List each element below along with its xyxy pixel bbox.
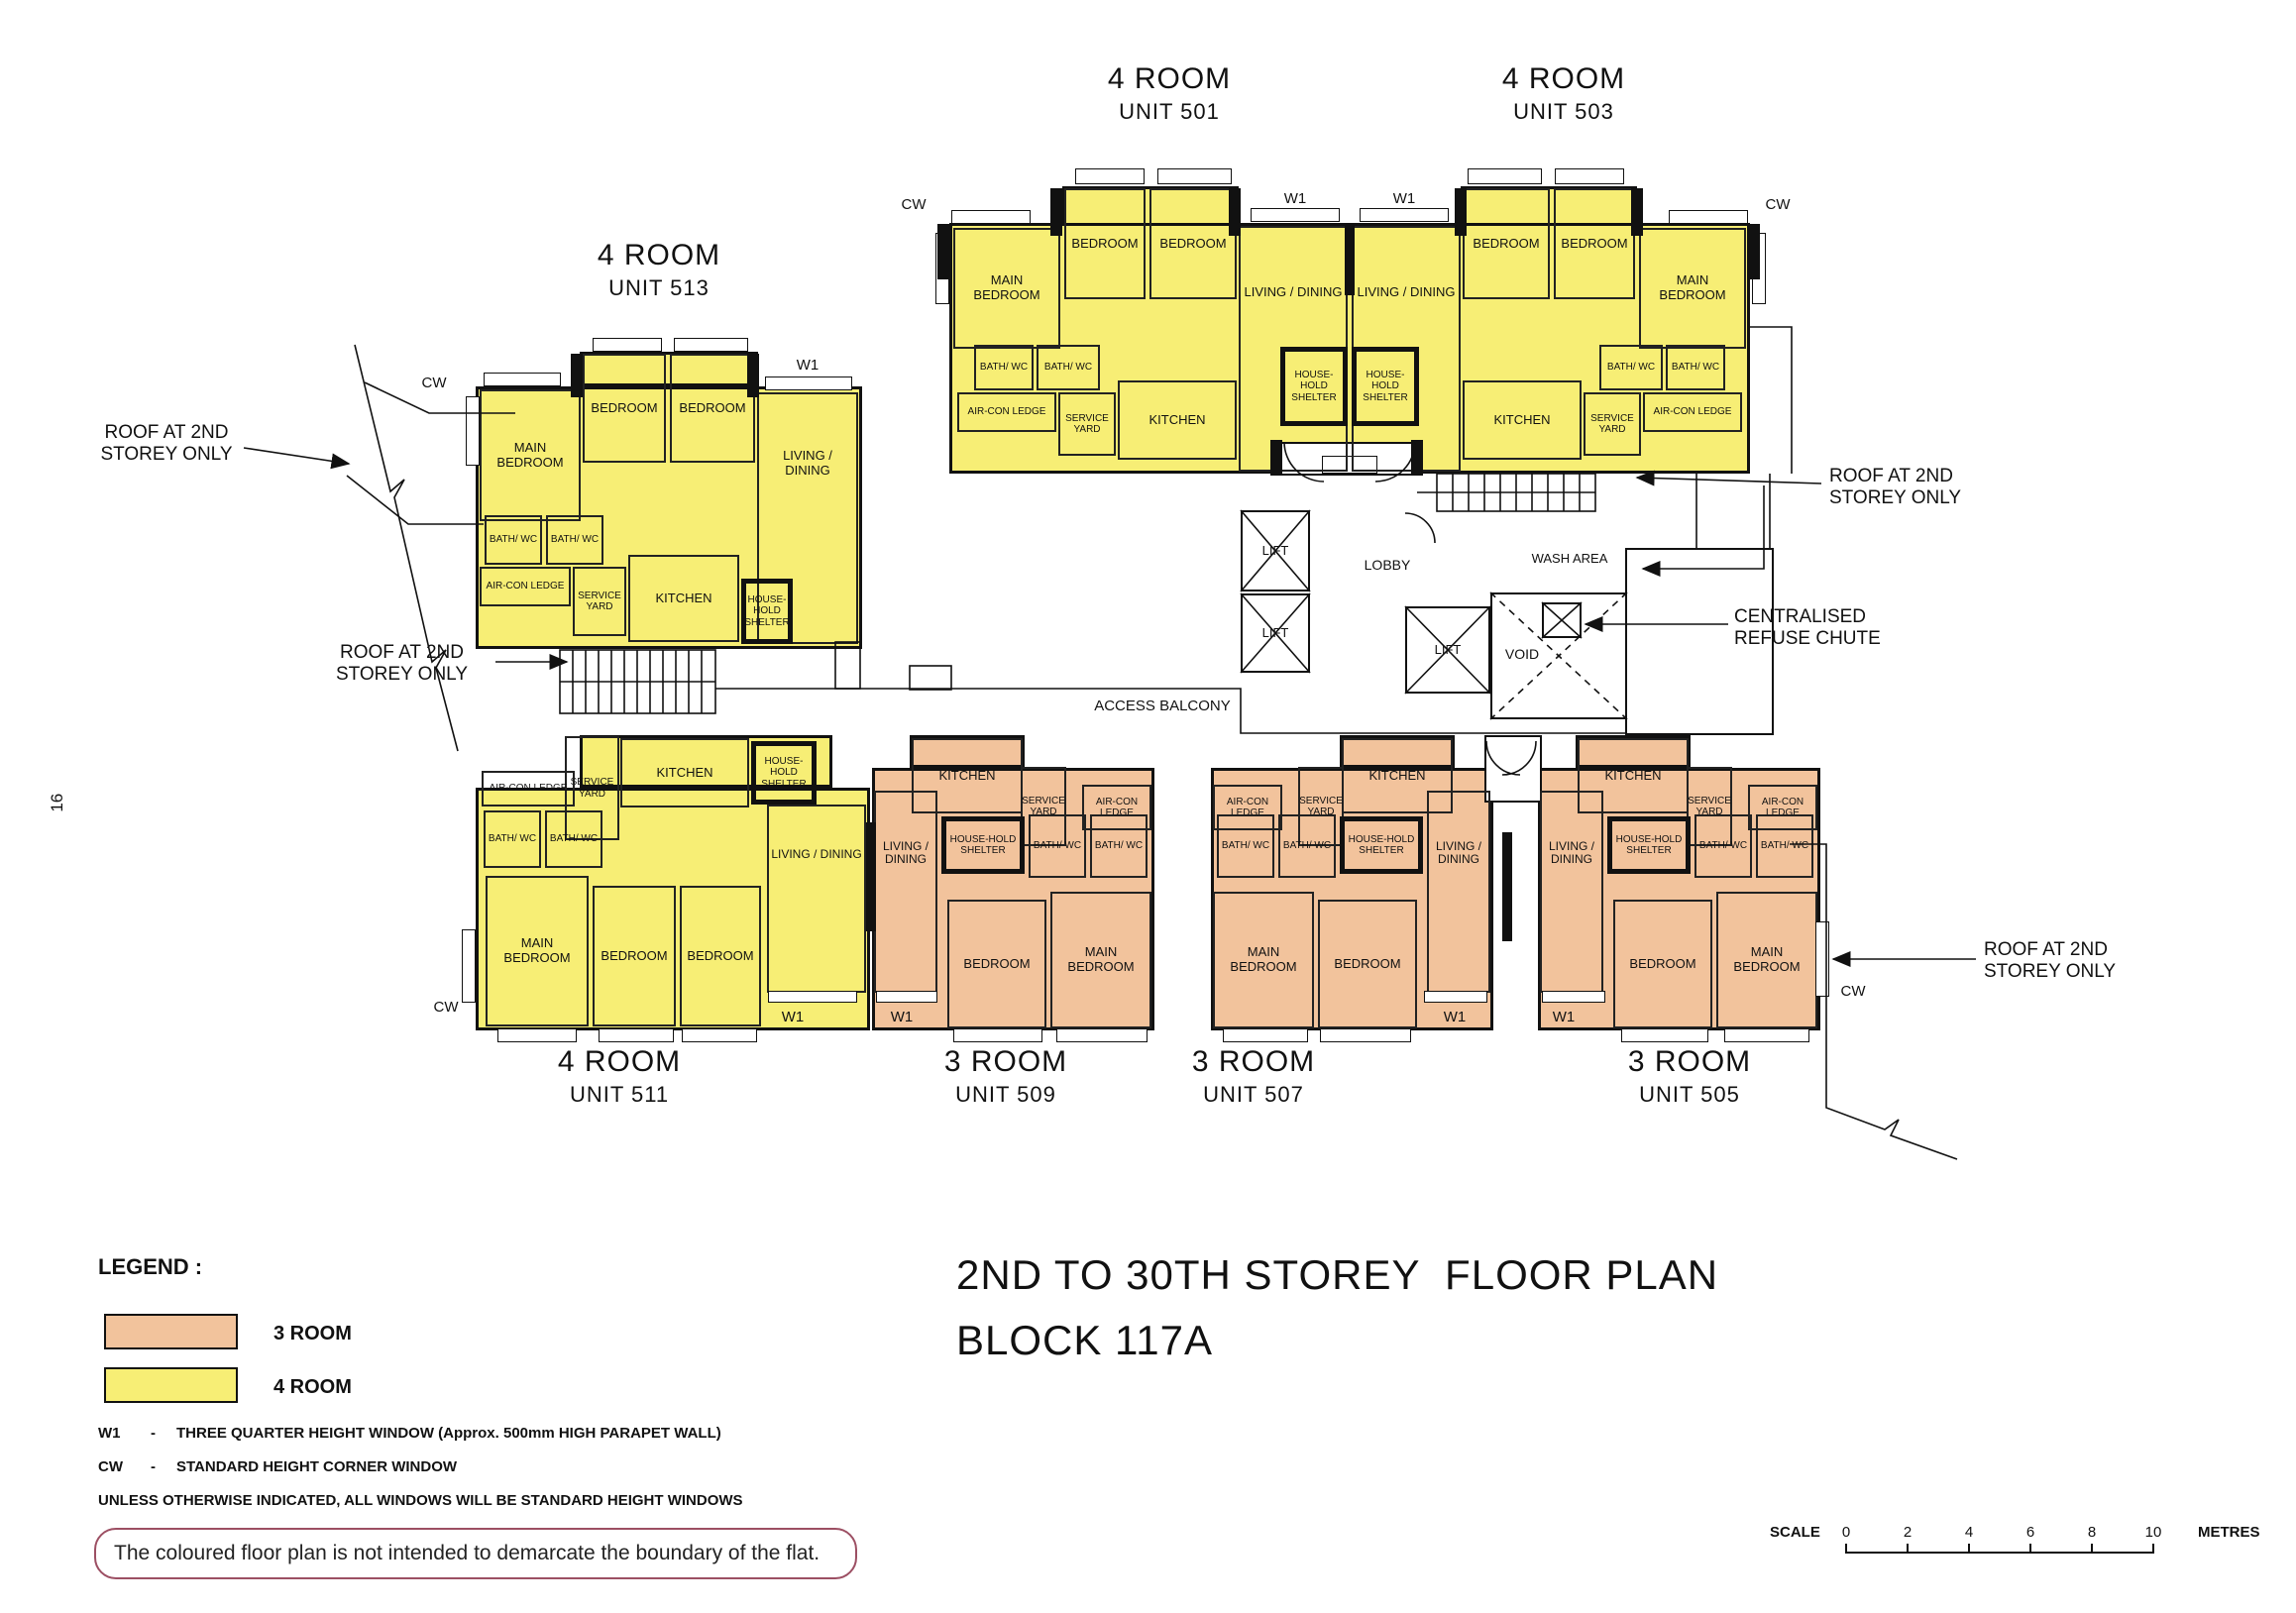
scale-label: SCALE — [1770, 1524, 1839, 1542]
unit-501-type: 4 ROOM — [1070, 61, 1268, 97]
legend-cw-text: STANDARD HEIGHT CORNER WINDOW — [176, 1458, 731, 1476]
legend-w1-dash: - — [151, 1425, 164, 1443]
cw-label: CW — [894, 196, 933, 214]
w1-label: W1 — [880, 1009, 924, 1026]
lobby-label: LOBBY — [1348, 557, 1427, 574]
door-arc — [1502, 741, 1536, 775]
door-arc — [1284, 442, 1324, 482]
scale-bar-tick — [1845, 1544, 1847, 1554]
legend-w1-text: THREE QUARTER HEIGHT WINDOW (Approx. 500… — [176, 1425, 731, 1443]
unit-503-number: UNIT 503 — [1465, 99, 1663, 125]
roof-step-topright — [1750, 327, 1792, 474]
cw-label: CW — [1758, 196, 1798, 214]
access-balcony-label: ACCESS BALCONY — [1068, 698, 1257, 715]
w1-label: W1 — [783, 357, 832, 375]
floor-plan-page: MAIN BEDROOM BEDROOM BEDROOM LIVING / DI… — [0, 0, 2296, 1613]
legend-swatch-3room — [104, 1314, 238, 1349]
door-arc — [1486, 741, 1520, 775]
cw-label: CW — [1833, 983, 1873, 1001]
roof-note-right-top: ROOF AT 2ND STOREY ONLY — [1829, 466, 1978, 510]
unit-513-number: UNIT 513 — [555, 275, 763, 301]
legend-w1-code: W1 — [98, 1425, 138, 1443]
unit-505-number: UNIT 505 — [1585, 1082, 1794, 1108]
scale-tick-10: 10 — [2140, 1524, 2166, 1542]
scale-bar-tick — [1968, 1544, 1970, 1554]
legend-label-3room: 3 ROOM — [273, 1322, 412, 1345]
wash-area-label: WASH AREA — [1530, 551, 1609, 567]
roof-note-left-top: ROOF AT 2ND STOREY ONLY — [87, 422, 246, 467]
refuse-chute-x — [1542, 602, 1582, 638]
unit-505-type: 3 ROOM — [1585, 1044, 1794, 1080]
unit-507-type: 3 ROOM — [1149, 1044, 1358, 1080]
core-wall — [1696, 474, 1770, 548]
legend-cw-code: CW — [98, 1458, 138, 1476]
roof-note-left-mid: ROOF AT 2ND STOREY ONLY — [315, 642, 489, 687]
w1-label: W1 — [1270, 190, 1320, 208]
unit-511-type: 4 ROOM — [515, 1044, 723, 1080]
door-arc — [1375, 442, 1415, 482]
w1-label: W1 — [1433, 1009, 1476, 1026]
cw-label: CW — [426, 999, 466, 1017]
balcony-step — [910, 666, 951, 690]
scale-tick-0: 0 — [1836, 1524, 1856, 1542]
legend-heading: LEGEND : — [98, 1254, 296, 1280]
scale-bar-line — [1845, 1552, 2152, 1554]
w1-label: W1 — [1542, 1009, 1585, 1026]
scale-tick-8: 8 — [2082, 1524, 2102, 1542]
leader-arrow — [1637, 478, 1821, 484]
scale-bar-tick — [1907, 1544, 1909, 1554]
page-title: 2ND TO 30TH STOREY FLOOR PLAN — [956, 1250, 1848, 1300]
door-arc — [1405, 513, 1435, 543]
legend-swatch-4room — [104, 1367, 238, 1403]
refuse-chute-note: CENTRALISED REFUSE CHUTE — [1734, 606, 1893, 651]
w1-label: W1 — [1379, 190, 1429, 208]
roof-line-right — [1790, 844, 1957, 1159]
roof-connector — [347, 476, 484, 524]
roof-line-left — [355, 345, 458, 751]
lift-label: LIFT — [1241, 593, 1310, 673]
unit-501-number: UNIT 501 — [1070, 99, 1268, 125]
disclaimer-text: The coloured floor plan is not intended … — [114, 1542, 820, 1565]
scale-tick-4: 4 — [1959, 1524, 1979, 1542]
leader-arrow — [1643, 485, 1764, 569]
unit-503-type: 4 ROOM — [1465, 61, 1663, 97]
balcony-step — [835, 642, 860, 689]
unit-509-number: UNIT 509 — [902, 1082, 1110, 1108]
scale-bar-tick — [2152, 1544, 2154, 1554]
plan-lines-overlay — [0, 0, 2296, 1613]
unit-511-number: UNIT 511 — [515, 1082, 723, 1108]
scale-tick-2: 2 — [1898, 1524, 1917, 1542]
lift-label: LIFT — [1241, 510, 1310, 591]
cw-label: CW — [414, 375, 454, 392]
void-label: VOID — [1492, 646, 1552, 663]
legend-footnote: UNLESS OTHERWISE INDICATED, ALL WINDOWS … — [98, 1492, 792, 1510]
page-number: 16 — [48, 783, 67, 822]
unit-513-type: 4 ROOM — [555, 238, 763, 273]
staircase-left — [560, 650, 715, 713]
disclaimer-box: The coloured floor plan is not intended … — [94, 1528, 857, 1579]
scale-tick-6: 6 — [2021, 1524, 2040, 1542]
scale-bar-tick — [2029, 1544, 2031, 1554]
legend-label-4room: 4 ROOM — [273, 1375, 412, 1399]
unit-507-number: UNIT 507 — [1149, 1082, 1358, 1108]
leader-arrow — [244, 448, 349, 464]
block-title: BLOCK 117A — [956, 1316, 1848, 1365]
unit-509-type: 3 ROOM — [902, 1044, 1110, 1080]
w1-label: W1 — [771, 1009, 815, 1026]
legend-cw-dash: - — [151, 1458, 164, 1476]
lift-label: LIFT — [1405, 606, 1490, 694]
scale-bar-tick — [2091, 1544, 2093, 1554]
staircase-core — [1417, 474, 1595, 511]
roof-note-right-bottom: ROOF AT 2ND STOREY ONLY — [1984, 939, 2132, 984]
scale-unit: METRES — [2198, 1524, 2287, 1542]
